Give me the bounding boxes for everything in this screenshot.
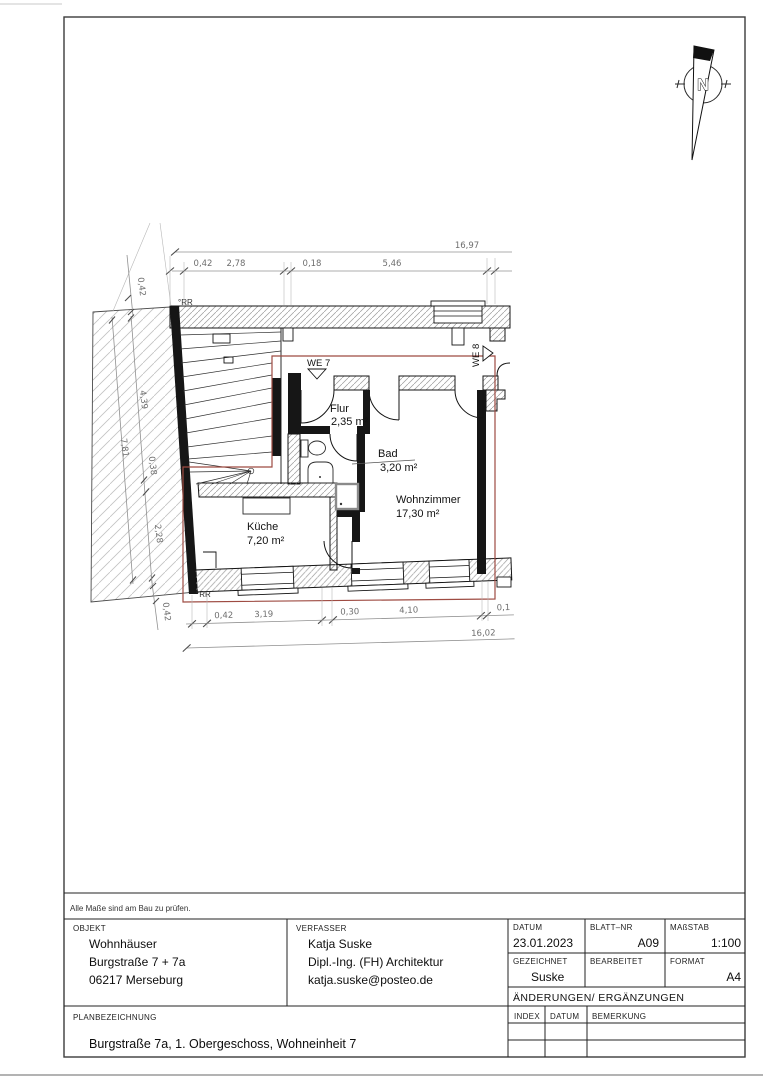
svg-text:Wohnzimmer: Wohnzimmer [396, 494, 461, 506]
kitchen-counter [243, 498, 290, 514]
massstab-label: MAßSTAB [670, 923, 709, 932]
shower-icon [336, 484, 358, 509]
rr-label-top: °RR [178, 298, 193, 307]
dimensions-note: Alle Maße sind am Bau zu prüfen. [70, 904, 191, 913]
format-label: FORMAT [670, 957, 705, 966]
svg-text:Bad: Bad [378, 448, 398, 460]
svg-text:2,35 m²: 2,35 m² [331, 416, 369, 428]
objekt-line-1: Wohnhäuser [89, 937, 157, 951]
svg-text:3,20 m²: 3,20 m² [380, 462, 418, 474]
bemerkung-col-label: BEMERKUNG [592, 1012, 646, 1021]
objekt-line-2: Burgstraße 7 + 7a [89, 955, 186, 969]
svg-text:WE 7: WE 7 [307, 358, 330, 369]
room-label-kueche: Küche 7,20 m² [247, 521, 285, 547]
aenderungen-label: ÄNDERUNGEN/ ERGÄNZUNGEN [513, 992, 684, 1004]
massstab-value: 1:100 [711, 936, 741, 950]
svg-text:16,02: 16,02 [471, 628, 496, 639]
svg-text:Küche: Küche [247, 521, 278, 533]
sink-icon [308, 462, 333, 483]
verfasser-line-1: Katja Suske [308, 937, 372, 951]
datum-label: DATUM [513, 923, 542, 932]
kitchen-step [203, 552, 216, 568]
svg-text:0,30: 0,30 [340, 607, 359, 618]
datum-value: 23.01.2023 [513, 936, 573, 950]
verfasser-label: VERFASSER [296, 924, 347, 933]
floor-plan-svg: N [0, 0, 763, 1080]
gezeichnet-label: GEZEICHNET [513, 957, 568, 966]
verfasser-line-3: katja.suske@posteo.de [308, 973, 433, 987]
format-value: A4 [726, 970, 741, 984]
objekt-line-3: 06217 Merseburg [89, 973, 183, 987]
svg-text:0,42: 0,42 [160, 602, 172, 622]
svg-text:16,97: 16,97 [455, 241, 479, 251]
drawing-sheet: N [0, 0, 763, 1080]
svg-text:0,1: 0,1 [497, 603, 511, 613]
svg-text:4,10: 4,10 [399, 606, 418, 617]
svg-text:5,46: 5,46 [383, 259, 402, 269]
outer-walls [170, 301, 512, 597]
blatt-nr-label: BLATT–NR [590, 923, 633, 932]
svg-text:0,42: 0,42 [194, 259, 213, 269]
room-label-flur: Flur 2,35 m² [330, 403, 369, 428]
staircase [180, 328, 281, 484]
we8-marker: WE 8 [471, 344, 493, 367]
we7-marker: WE 7 [307, 358, 330, 379]
north-letter: N [697, 77, 709, 94]
svg-text:0,18: 0,18 [303, 259, 322, 269]
title-block: Alle Maße sind am Bau zu prüfen. OBJEKT … [64, 893, 745, 1057]
svg-text:Flur: Flur [330, 403, 349, 415]
index-col-label: INDEX [514, 1012, 540, 1021]
svg-text:17,30 m²: 17,30 m² [396, 508, 440, 520]
north-arrow-icon: N [675, 46, 731, 160]
gezeichnet-value: Suske [531, 970, 565, 984]
svg-text:WE 8: WE 8 [471, 344, 482, 367]
svg-text:2,78: 2,78 [227, 259, 246, 269]
dimension-chain-top: 16,97 0,42 2,78 0,18 5,46 [166, 241, 512, 306]
bearbeitet-label: BEARBEITET [590, 957, 643, 966]
objekt-label: OBJEKT [73, 924, 106, 933]
blatt-nr-value: A09 [638, 936, 660, 950]
planbezeichnung-value: Burgstraße 7a, 1. Obergeschoss, Wohneinh… [89, 1037, 356, 1051]
svg-text:7,20 m²: 7,20 m² [247, 535, 285, 547]
index-datum-col-label: DATUM [550, 1012, 579, 1021]
svg-text:0,42: 0,42 [135, 277, 147, 297]
svg-text:0,42: 0,42 [214, 611, 233, 622]
svg-text:3,19: 3,19 [254, 610, 273, 621]
rr-label-bottom: °RR [196, 590, 211, 599]
verfasser-line-2: Dipl.-Ing. (FH) Architektur [308, 955, 443, 969]
planbezeichnung-label: PLANBEZEICHNUNG [73, 1013, 157, 1022]
room-label-wohnzimmer: Wohnzimmer 17,30 m² [396, 494, 461, 520]
wc-icon [301, 440, 308, 457]
